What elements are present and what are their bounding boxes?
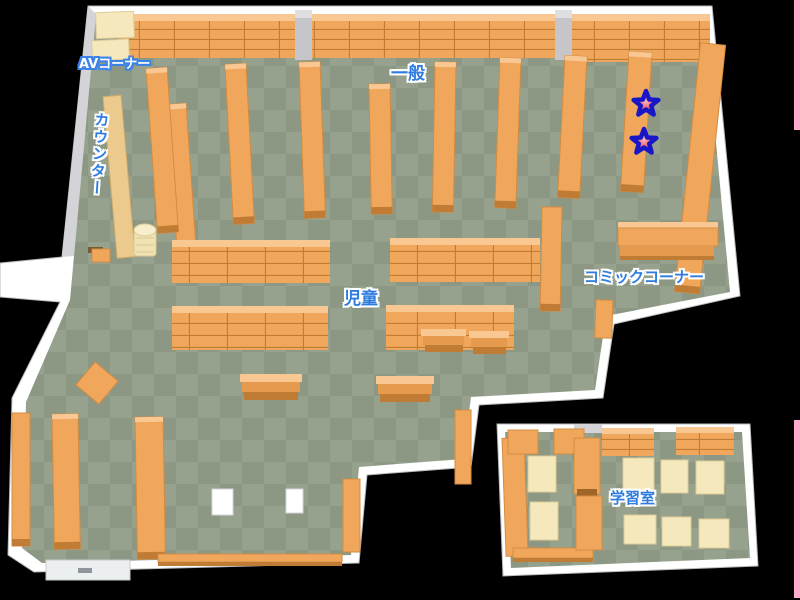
library-floor-map: AVコーナー 一般 カウンター 児童 コミックコーナー 学習室: [0, 0, 800, 600]
area-label-comic-corner: コミックコーナー: [584, 266, 704, 287]
page-edge-strip: [794, 0, 800, 130]
entrance-doorway: [46, 560, 130, 580]
area-label-study-room: 学習室: [610, 487, 655, 508]
area-label-children: 児童: [344, 284, 378, 309]
area-label-general: 一般: [391, 59, 425, 84]
floor-plan: [0, 0, 800, 600]
area-label-av-corner: AVコーナー: [79, 53, 150, 72]
page-edge-strip: [794, 420, 800, 598]
